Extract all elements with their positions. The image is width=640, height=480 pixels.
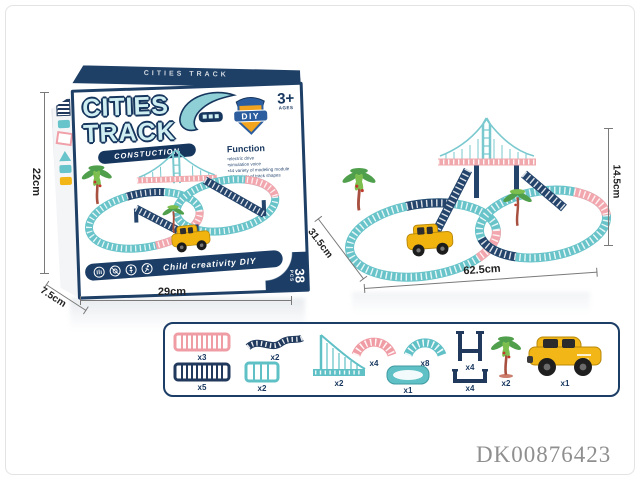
watermark-code: DK00876423: [476, 442, 611, 468]
brand-line2: TRACK: [83, 119, 176, 147]
diy-shield-badge: DIY: [230, 91, 272, 140]
part-qty-label: x2: [258, 385, 267, 393]
brand-logo: CITIES TRACK: [82, 93, 176, 147]
dimension-line-box-width: [80, 300, 292, 301]
side-thumb-teal-piece: [58, 120, 70, 128]
side-thumb-bridge: [59, 151, 71, 161]
part-palm-tree: x2: [491, 329, 521, 388]
age-grading: 3+ AGES: [277, 91, 295, 111]
age-label: AGES: [277, 106, 294, 111]
box-track-artwork: [76, 141, 304, 261]
dimension-box-width: 29cm: [142, 286, 202, 298]
side-thumb-car: [60, 177, 72, 185]
part-toy-car: x1: [525, 329, 605, 388]
box-front-face: CITIES TRACK CONSTUCTION DIY 3+ AGES: [71, 82, 310, 300]
product-box: CITIES TRACK CITIES TRACK CONSTUCTION: [48, 52, 315, 313]
palm-tree-icon: [80, 165, 114, 205]
part-navy-straight-track: x5: [173, 361, 231, 392]
parts-list-strip: x3 x2 x5 x2: [163, 322, 620, 397]
pieces-count: 38: [293, 268, 306, 283]
side-thumb-teal-piece2: [59, 165, 71, 173]
safety-icon-child: [125, 263, 138, 276]
safety-icon-running: [141, 262, 154, 275]
part-qty-label: x2: [502, 380, 511, 388]
dimension-set-height: 14.5cm: [611, 158, 622, 206]
part-qty-label: x4: [370, 360, 379, 368]
part-qty-label: x5: [198, 384, 207, 392]
pieces-unit: PCS: [288, 268, 293, 283]
part-pink-straight-track: x3: [173, 331, 231, 362]
part-teal-short-track: x2: [244, 360, 280, 393]
dimension-box-height: 22cm: [30, 160, 42, 204]
banner-text: Child creativity DIY: [163, 255, 257, 272]
part-navy-wave-track: x2: [245, 333, 305, 362]
part-teal-arc-track: x8: [403, 329, 447, 368]
product-photo-scene: CITIES TRACK CITIES TRACK CONSTUCTION: [0, 0, 640, 480]
part-qty-label: x2: [335, 380, 344, 388]
safety-icon-hand: [93, 265, 106, 278]
dimension-line-box-height: [44, 92, 45, 274]
diy-badge-label: DIY: [241, 111, 260, 122]
dimension-line-set-height: [608, 128, 609, 246]
safety-icon-no-swallow: [109, 264, 122, 277]
toy-car-icon: [406, 223, 454, 257]
part-upper-pillar-bracket: x4: [453, 329, 487, 372]
side-thumb-track: [56, 99, 71, 116]
part-teal-base-plate: x1: [385, 364, 431, 395]
palm-tree-icon: [341, 168, 377, 210]
pieces-count-wedge: 38 PCS: [265, 252, 308, 291]
part-lower-pillar-bracket: x4: [451, 368, 489, 393]
box-top-brand-text: CITIES TRACK: [72, 69, 300, 80]
part-pink-arc-track: x4: [351, 329, 397, 368]
part-qty-label: x1: [561, 380, 570, 388]
side-thumb-pink-piece: [56, 131, 74, 146]
part-qty-label: x4: [466, 385, 475, 393]
part-qty-label: x1: [404, 387, 413, 395]
